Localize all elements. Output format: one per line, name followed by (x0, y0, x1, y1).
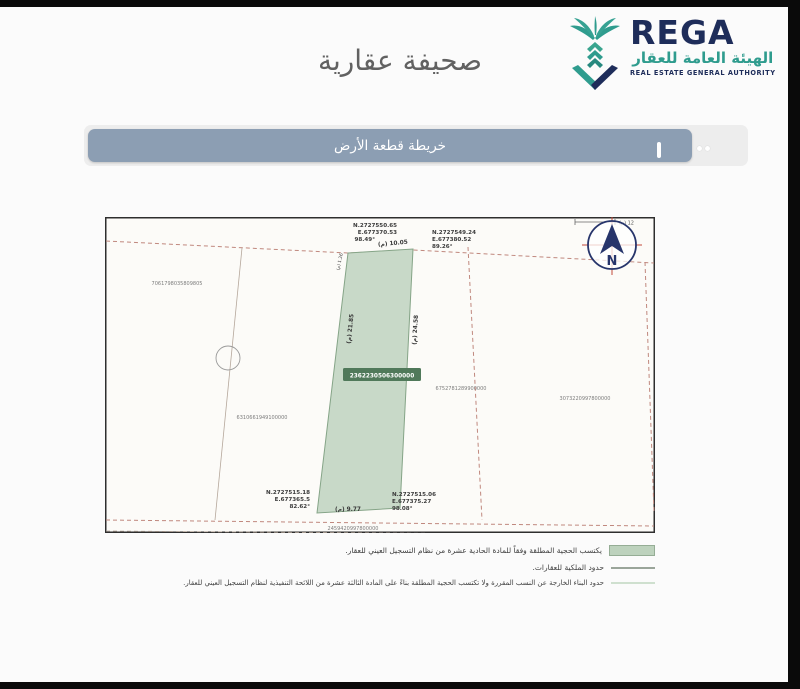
frame-bottom (0, 682, 800, 689)
logo-wordmark: REGA (630, 16, 735, 49)
section-bar: خريطة قطعة الأرض (88, 129, 692, 162)
screen: صحيفة عقارية REGA الهيئة العامة للع (0, 0, 800, 689)
legend-item-building-boundaries: حدود البناء الخارجة عن النسب المقررة ولا… (105, 579, 655, 587)
coord-tr-angle: 89.26° (432, 244, 453, 250)
coord-tr-easting: E.677380.52 (432, 237, 471, 243)
logo-arabic-name: الهيئة العامة للعقار (630, 51, 776, 66)
frame-top (0, 0, 800, 7)
coord-tl-northing: N.2727550.65 (353, 223, 397, 229)
section-bar-label: خريطة قطعة الأرض (334, 138, 446, 154)
plot-map-svg: 2362230506300000 7061798035809805 631066… (105, 217, 655, 533)
parcel-number-south: 2459420997800000 (328, 526, 379, 532)
land-plot-map: 2362230506300000 7061798035809805 631066… (105, 217, 655, 533)
coord-bl-angle: 82.62° (290, 504, 311, 510)
coord-bl-easting: E.677365.5 (275, 497, 310, 503)
parcel-number-east-outer: 3073220997800000 (560, 396, 611, 402)
parcel-number-southwest: 6310661949100000 (237, 415, 288, 421)
light-green-line-swatch-icon (611, 582, 655, 584)
coord-bl-northing: N.2727515.18 (266, 490, 310, 496)
dimension-bottom: (م) 9.77 (335, 507, 361, 513)
rega-logo: REGA الهيئة العامة للعقار REAL ESTATE GE… (566, 16, 784, 96)
coord-br-northing: N.2727515.06 (392, 492, 436, 498)
compass-north-letter: N (607, 254, 618, 269)
legend-item-text: يكتسب الحجية المطلقة وفقاً للمادة الحادي… (345, 546, 602, 555)
legend-item-text: حدود البناء الخارجة عن النسب المقررة ولا… (183, 579, 604, 587)
map-legend: يكتسب الحجية المطلقة وفقاً للمادة الحادي… (105, 545, 655, 594)
drag-handle-icon[interactable] (657, 142, 661, 158)
subject-parcel-number: 2362230506300000 (350, 374, 415, 380)
coord-br-angle: 98.08° (392, 506, 413, 512)
logo-english-name: REAL ESTATE GENERAL AUTHORITY (630, 70, 776, 77)
coord-br-easting: E.677375.27 (392, 499, 431, 505)
page-title: صحيفة عقارية (280, 44, 520, 77)
gray-line-swatch-icon (611, 567, 655, 569)
green-fill-swatch-icon (609, 545, 655, 556)
legend-item-absolute-authority: يكتسب الحجية المطلقة وفقاً للمادة الحادي… (105, 545, 655, 556)
frame-right (788, 0, 800, 689)
legend-item-text: حدود الملكية للعقارات. (532, 563, 604, 572)
palm-tree-icon (566, 16, 624, 96)
coord-tl-easting: E.677370.53 (358, 230, 397, 236)
coord-tl-angle: 98.49° (355, 237, 376, 243)
parcel-number-west: 7061798035809805 (152, 281, 203, 287)
legend-item-ownership-boundaries: حدود الملكية للعقارات. (105, 563, 655, 572)
parcel-number-east-inner: 6752781289900000 (436, 386, 487, 392)
coord-tr-northing: N.2727549.24 (432, 230, 476, 236)
dot-indicator-icon (705, 146, 710, 151)
logo-text-block: REGA الهيئة العامة للعقار REAL ESTATE GE… (630, 16, 776, 77)
dot-indicator-icon (697, 146, 702, 151)
